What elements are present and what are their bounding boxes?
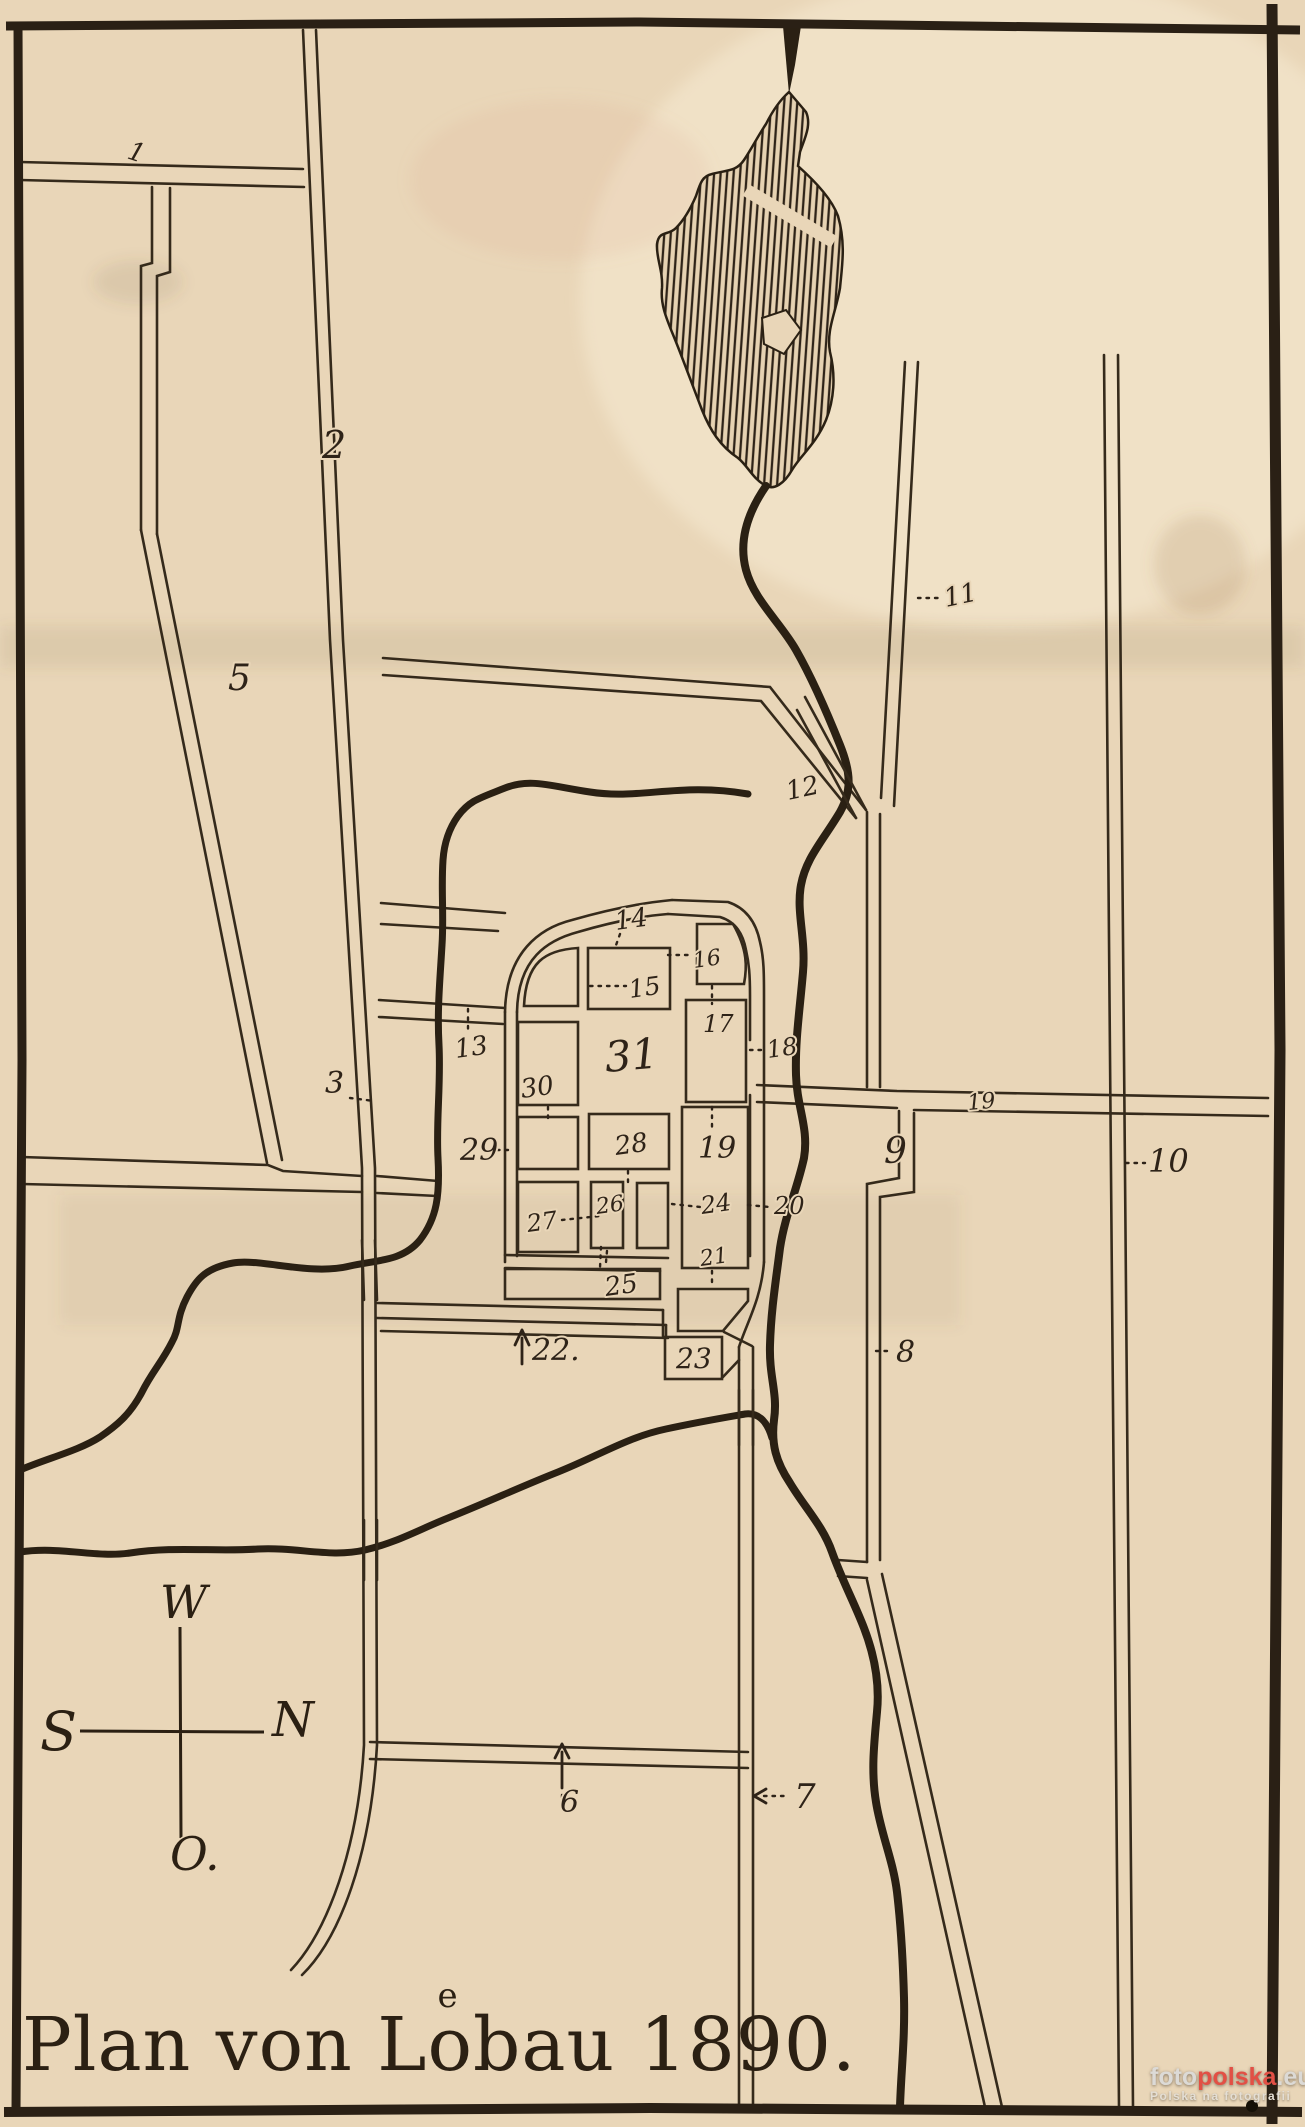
title-superscript-e: e	[437, 1976, 458, 2016]
map-label-3: 3	[325, 1066, 344, 1101]
map-label-29: 29	[459, 1133, 498, 1168]
map-label-15: 15	[627, 971, 663, 1004]
map-label-10: 10	[1148, 1142, 1189, 1180]
map-label-30: 30	[519, 1071, 556, 1105]
map-label-24: 24	[698, 1188, 733, 1220]
map-label-19: 19	[966, 1089, 996, 1116]
map-title: Plan von Leobau 1890.	[22, 2002, 857, 2088]
map-label-2: 2	[321, 423, 346, 467]
watermark-logo: fotopolska.eu	[1150, 2064, 1305, 2090]
round-stain	[1154, 515, 1246, 615]
scanned-map-page: { "title": { "full": "Plan von Löbau 189…	[0, 0, 1305, 2127]
map-label-17: 17	[703, 1010, 734, 1038]
map-label-31: 31	[603, 1028, 661, 1081]
map-label-16: 16	[691, 945, 722, 974]
dark-band	[0, 626, 1305, 668]
title-prefix: Plan von L	[22, 2002, 427, 2088]
map-label-26: 26	[593, 1191, 625, 1220]
watermark-polska: polska	[1197, 2063, 1276, 2091]
compass-south: S	[40, 1700, 77, 1763]
map-label-22: 22.	[531, 1333, 580, 1368]
map-label-19: 19	[698, 1131, 736, 1166]
compass-west: W	[160, 1575, 211, 1629]
map-label-14: 14	[613, 903, 650, 937]
compass-east: O.	[170, 1827, 220, 1881]
title-suffix: bau 1890.	[473, 2002, 857, 2088]
map-label-6: 6	[560, 1785, 579, 1820]
map-label-25: 25	[602, 1269, 640, 1303]
watermark-eu: .eu	[1276, 2063, 1305, 2091]
map-label-18: 18	[765, 1032, 799, 1064]
map-label-20: 20	[773, 1192, 805, 1220]
map-canvas: W S N O. 1235678910111213141516171831191…	[0, 0, 1305, 2127]
map-label-23: 23	[675, 1342, 712, 1375]
map-label-5: 5	[228, 658, 251, 699]
map-label-7: 7	[794, 1777, 816, 1817]
compass-north: N	[271, 1692, 316, 1748]
watermark: fotopolska.eu Polska na fotografii	[1150, 2064, 1305, 2103]
leader-25	[600, 1247, 601, 1268]
map-label-13: 13	[453, 1031, 490, 1065]
map-label-21: 21	[697, 1243, 729, 1272]
watermark-tagline: Polska na fotografii	[1150, 2090, 1305, 2103]
map-label-9: 9	[884, 1131, 907, 1172]
map-label-27: 27	[524, 1206, 560, 1238]
map-label-8: 8	[896, 1335, 915, 1370]
title-o-umlaut: eo	[427, 2002, 473, 2088]
map-label-28: 28	[612, 1128, 650, 1162]
frame-bottom	[4, 2108, 1302, 2112]
watermark-foto: foto	[1150, 2063, 1197, 2091]
